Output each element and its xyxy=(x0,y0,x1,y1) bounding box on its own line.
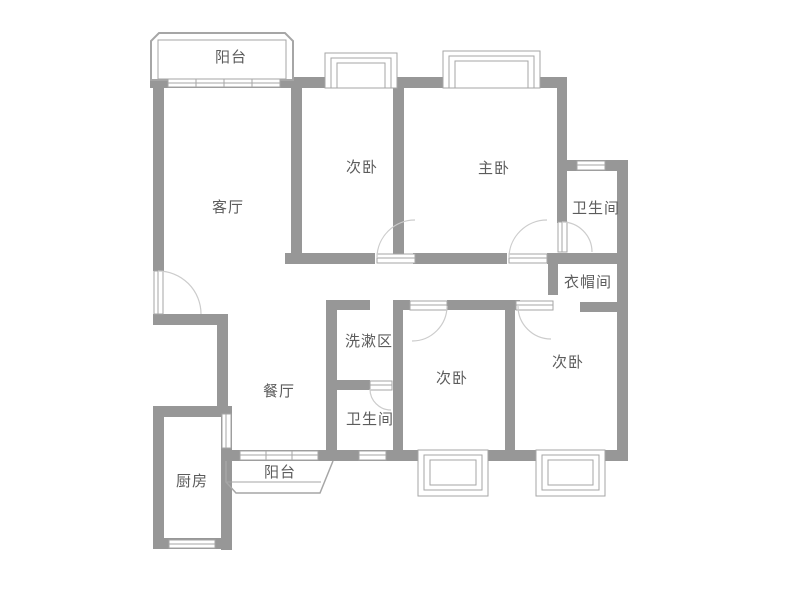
wall-kitchen-left xyxy=(153,406,164,549)
room-label-balcony-bottom: 阳台 xyxy=(264,464,296,481)
room-label-living-room: 客厅 xyxy=(212,199,244,216)
wall-kitchen-top xyxy=(153,406,232,417)
wall-living-bedroom xyxy=(291,77,302,263)
wall-entry-step-v xyxy=(217,314,228,417)
room-label-wash-area: 洗漱区 xyxy=(345,333,393,350)
wall-wash-top-stub xyxy=(326,300,370,310)
door-arc-bedroom-bottom-right xyxy=(518,306,551,339)
room-label-dining-room: 餐厅 xyxy=(263,383,295,400)
wall-cloakroom-left xyxy=(548,264,558,295)
wall-bedrooms-bottom-top-2 xyxy=(447,300,520,310)
door-bedroom-bottom-middle xyxy=(410,301,447,310)
wall-bedrooms-bottom-divider xyxy=(505,310,515,450)
room-label-bedroom-bottom-right: 次卧 xyxy=(552,354,584,371)
window-balcony-top xyxy=(168,79,280,87)
wall-entry-step-h xyxy=(153,314,228,325)
wall-wash-bath-divider xyxy=(337,380,370,390)
room-label-kitchen: 厨房 xyxy=(176,473,208,490)
wall-master-right xyxy=(557,77,567,223)
door-master-bedroom xyxy=(509,254,547,263)
window-kitchen xyxy=(169,540,215,548)
window-bathroom-upper xyxy=(577,161,605,170)
room-label-master-bedroom: 主卧 xyxy=(478,160,510,177)
door-bathroom-upper xyxy=(558,222,567,252)
sliding-door-kitchen xyxy=(222,414,231,448)
wall-left-exterior xyxy=(153,77,164,271)
wall-bedrooms-bottom-top-1 xyxy=(393,300,410,310)
door-bedroom-top-middle xyxy=(377,254,415,263)
windows xyxy=(168,51,605,548)
room-label-bedroom-bottom-middle: 次卧 xyxy=(436,370,468,387)
bay-window-bottom-2 xyxy=(536,450,605,496)
door-bathroom-lower xyxy=(370,381,392,390)
floorplan-canvas: 阳台 次卧 主卧 卫生间 客厅 衣帽间 洗漱区 餐厅 次卧 次卧 卫生间 阳台 … xyxy=(0,0,800,600)
room-label-bathroom-lower: 卫生间 xyxy=(346,411,394,428)
door-arc-bedroom-bottom-middle xyxy=(412,306,447,341)
room-label-cloakroom: 衣帽间 xyxy=(564,274,612,291)
door-entry xyxy=(154,271,163,314)
room-label-balcony-top: 阳台 xyxy=(215,49,247,66)
sliding-door-balcony-bottom xyxy=(240,451,318,460)
wall-wash-left xyxy=(326,300,337,450)
door-arc-bathroom-lower xyxy=(370,389,391,410)
bay-window-top-1 xyxy=(325,53,397,88)
room-label-bedroom-top-middle: 次卧 xyxy=(346,159,378,176)
wall-bedrooms-divider-top xyxy=(393,77,404,263)
door-arc-entry xyxy=(158,271,201,314)
wall-hallway-top-2 xyxy=(413,253,507,264)
bay-window-top-2 xyxy=(443,51,540,88)
wall-hallway-top-3 xyxy=(547,253,628,264)
door-arc-master-bedroom xyxy=(509,220,547,258)
bay-window-bottom-1 xyxy=(418,450,488,496)
floorplan-svg: 阳台 次卧 主卧 卫生间 客厅 衣帽间 洗漱区 餐厅 次卧 次卧 卫生间 阳台 … xyxy=(0,0,800,600)
wall-hallway-top-1 xyxy=(285,253,375,264)
window-bottom-small xyxy=(359,451,386,460)
wall-wash-right xyxy=(393,300,403,450)
door-bedroom-bottom-right xyxy=(516,301,553,310)
wall-cloakroom-bottom xyxy=(580,302,628,312)
room-label-bathroom-upper: 卫生间 xyxy=(572,200,620,217)
